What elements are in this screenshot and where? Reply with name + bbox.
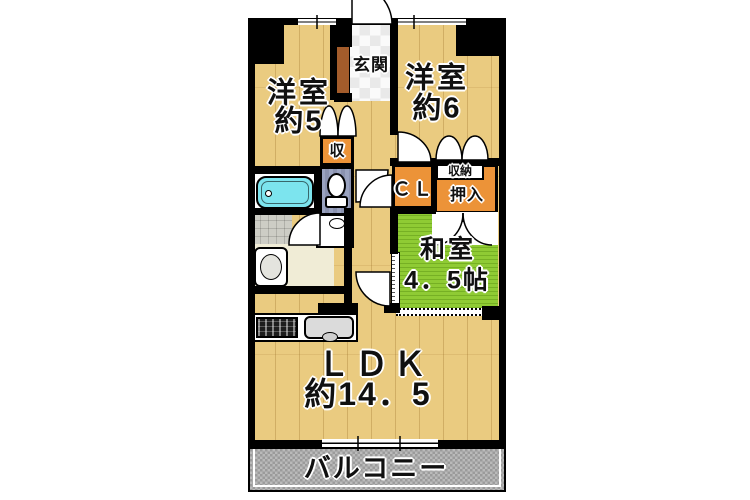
entrance-shoe-step (336, 46, 350, 96)
label-entrance: 玄関 (353, 57, 389, 74)
wall-bath-top (252, 166, 322, 174)
stove-icon (256, 317, 298, 338)
window-western5 (298, 19, 336, 25)
wall-washroom-bottom (252, 286, 344, 294)
label-western6-line2: 約6 (412, 95, 461, 124)
wall-washitsu-left-upper (390, 206, 398, 254)
sliding-door-track (396, 308, 484, 316)
window-western6 (398, 19, 466, 25)
wall-hall-bottom-stub-right (384, 303, 400, 313)
label-western5-line1: 洋室 (267, 80, 331, 109)
label-western5-line2: 約5 (274, 108, 323, 137)
label-balcony: バルコニー (304, 456, 448, 483)
wall-hall-left-mid (344, 208, 352, 312)
washbasin-bowl-icon (329, 218, 345, 229)
wall-entrance-corner (330, 25, 352, 47)
label-oshiire: 押入 (450, 188, 484, 204)
label-storage-shu: 収 (329, 144, 344, 159)
wall-entrance-stub-left (334, 93, 352, 102)
washing-machine-icon (254, 247, 288, 287)
label-closet-cl: ＣＬ (392, 181, 434, 200)
wall-hall-bottom-stub-left (344, 303, 358, 313)
wall-outer-left (248, 18, 255, 447)
sink-faucet-icon (322, 332, 338, 342)
wall-outer-right (499, 18, 506, 447)
toilet-icon (327, 173, 346, 198)
toilet-tank-icon (325, 196, 348, 208)
bathtub-icon (256, 176, 314, 209)
dressing-room-tile-floor (252, 212, 292, 246)
shoji-sliding-door (391, 252, 400, 310)
floorplan-canvas: 洋室 約5 洋室 約6 玄関 収 ＣＬ 収納 押入 和室 4．5帖 ＬＤＫ 約1… (0, 0, 750, 500)
label-ldk-line2: 約14．5 (304, 378, 431, 410)
label-storage-shuno: 収納 (448, 165, 472, 177)
label-japanese-room-line1: 和室 (420, 238, 476, 263)
wall-bath-bottom (252, 208, 318, 215)
wall-washitsu-bottom-stub (482, 306, 506, 320)
label-western6-line1: 洋室 (405, 65, 469, 94)
pillar-top-left (248, 18, 284, 64)
wall-hall-right-upper (390, 25, 398, 135)
label-japanese-room-line2: 4．5帖 (404, 269, 490, 294)
